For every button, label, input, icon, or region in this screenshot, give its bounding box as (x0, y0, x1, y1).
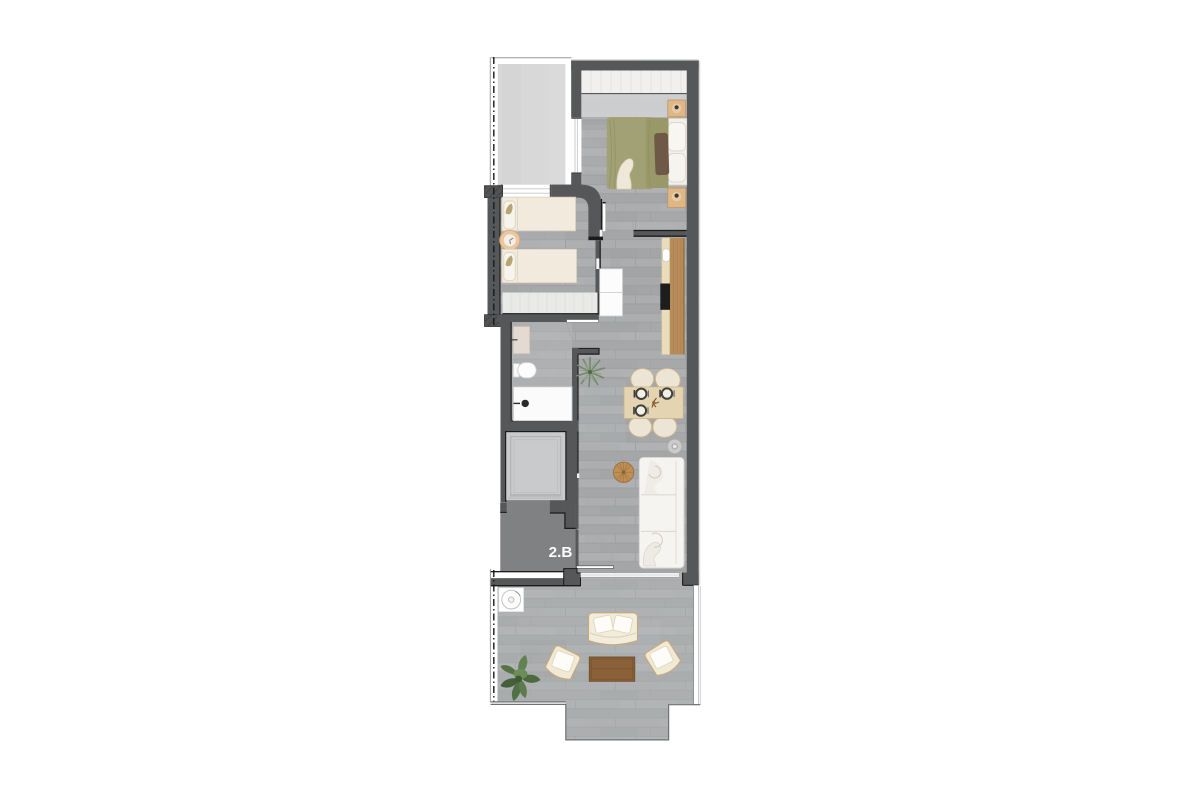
svg-text:2.B: 2.B (549, 544, 573, 561)
